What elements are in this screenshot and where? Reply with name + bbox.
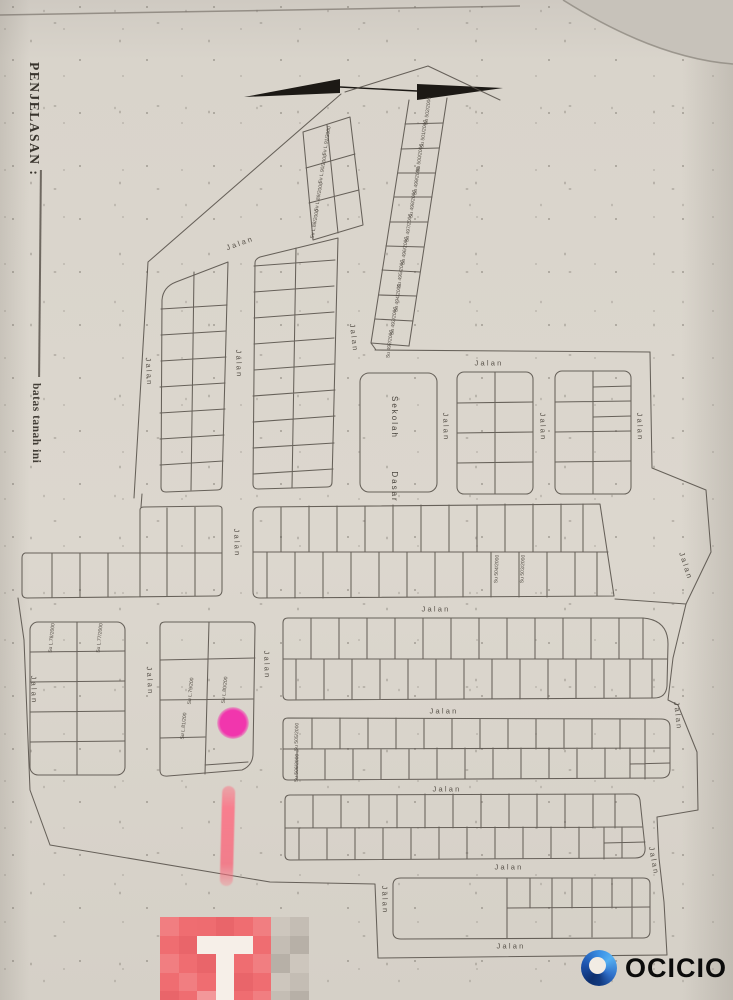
mosaic-cell: [197, 954, 216, 973]
mosaic-cell: [216, 936, 235, 955]
street-label: Jalan: [635, 412, 645, 441]
scanned-map-photo: PENJELASAN : batas tanah ini Sekolah Das…: [0, 0, 733, 1000]
street-label: Jalan: [475, 359, 504, 368]
street-label: Jalan: [433, 785, 462, 794]
street-label: Jalan: [232, 528, 242, 557]
ocicio-logo-text: OCICIO: [625, 953, 727, 984]
mosaic-cell: [271, 991, 290, 1000]
ocicio-logo-icon: [581, 950, 617, 986]
street-label: Jalan: [441, 412, 451, 441]
mosaic-cell: [290, 954, 309, 973]
mosaic-cell: [160, 973, 179, 992]
street-label: Jalan: [145, 666, 156, 695]
mosaic-cell: [234, 991, 253, 1000]
street-label: Jalan: [234, 349, 244, 378]
north-strip-lines: [303, 66, 500, 346]
street-label: Jalan: [262, 650, 272, 679]
paper-top-edge: [0, 6, 520, 15]
mosaic-cell: [271, 917, 290, 936]
street-label: Jalan: [380, 885, 390, 914]
map-lines: [0, 0, 733, 1000]
mosaic-cell: [234, 936, 253, 955]
school-block-label: Sekolah Dasar: [390, 396, 399, 503]
street-label: Jalan: [495, 863, 524, 872]
plot-label: Su 506/2000: [294, 754, 301, 783]
mosaic-cell: [197, 991, 216, 1000]
north-arrow-icon: [244, 79, 503, 100]
mosaic-cell: [271, 936, 290, 955]
mosaic-cell: [179, 954, 198, 973]
street-label: Jalan: [538, 412, 548, 441]
mosaic-cell: [179, 991, 198, 1000]
paper-fold: [563, 0, 733, 64]
plot-label: Su 505/2000: [294, 723, 301, 752]
mosaic-cell: [290, 917, 309, 936]
mosaic-cell: [253, 991, 272, 1000]
mosaic-cell: [197, 917, 216, 936]
mosaic-cell: [160, 936, 179, 955]
mosaic-cell: [234, 917, 253, 936]
mosaic-cell: [160, 954, 179, 973]
mosaic-cell: [179, 973, 198, 992]
mosaic-cell: [253, 917, 272, 936]
block-grid-lines: [22, 238, 670, 939]
mosaic-cell: [234, 954, 253, 973]
marker-stroke: [220, 786, 236, 886]
mosaic-cell: [271, 973, 290, 992]
street-label: Jalan: [497, 942, 526, 951]
margin-note: batas tanah ini: [30, 383, 42, 463]
mosaic-cell: [179, 917, 198, 936]
watermark-logo: OCICIO: [581, 950, 727, 986]
mosaic-cell: [160, 917, 179, 936]
location-marker-dot: [217, 707, 249, 739]
mosaic-cell: [253, 954, 272, 973]
mosaic-cell: [290, 991, 309, 1000]
mosaic-cell: [197, 973, 216, 992]
mosaic-cell: [216, 973, 235, 992]
mosaic-cell: [271, 954, 290, 973]
mosaic-cell: [160, 991, 179, 1000]
mosaic-cell: [216, 954, 235, 973]
mosaic-cell: [253, 936, 272, 955]
mosaic-cell: [290, 973, 309, 992]
mosaic-cell: [179, 936, 198, 955]
mosaic-cell: [253, 973, 272, 992]
margin-title: PENJELASAN :: [26, 62, 42, 176]
street-label: Jalan: [144, 357, 155, 386]
mosaic-cell: [216, 917, 235, 936]
street-label: Jalan: [430, 707, 459, 716]
ocicio-logo-hole: [589, 957, 606, 974]
street-label: Jalan: [422, 605, 451, 614]
street-label: Jalan: [29, 675, 39, 704]
mosaic-cell: [216, 991, 235, 1000]
mosaic-cell: [290, 936, 309, 955]
mosaic-cell: [234, 973, 253, 992]
mosaic-cell: [197, 936, 216, 955]
